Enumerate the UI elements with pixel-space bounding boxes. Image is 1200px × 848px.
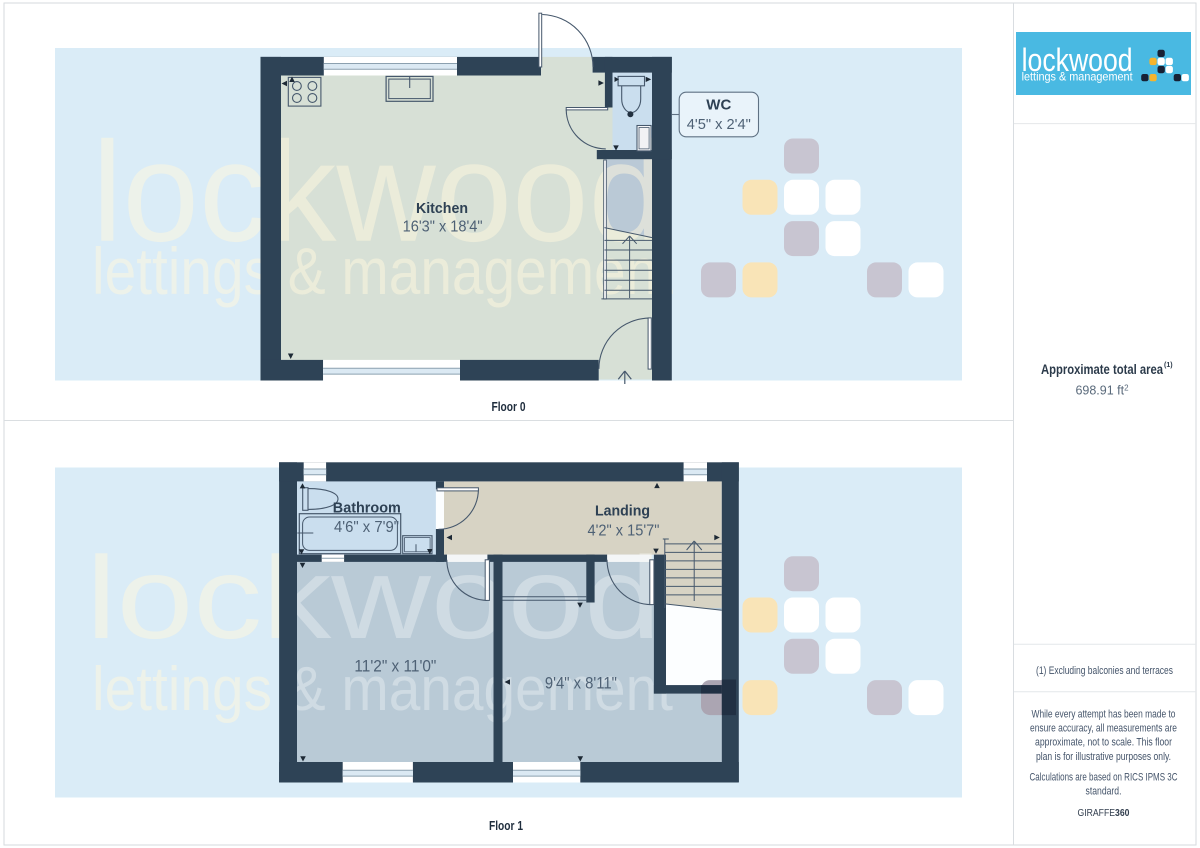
svg-text:While every attempt has been m: While every attempt has been made to <box>1032 709 1176 721</box>
svg-text:GIRAFFE360: GIRAFFE360 <box>1078 807 1130 819</box>
svg-text:4'6" x 7'9": 4'6" x 7'9" <box>334 519 399 536</box>
svg-text:698.91 ft2: 698.91 ft2 <box>1075 384 1129 398</box>
svg-text:plan is for illustrative purpo: plan is for illustrative purposes only. <box>1036 751 1171 763</box>
svg-text:Bathroom: Bathroom <box>333 500 401 517</box>
svg-text:Approximate total area: Approximate total area <box>1041 362 1163 377</box>
svg-text:(1): (1) <box>1164 362 1173 369</box>
svg-text:standard.: standard. <box>1086 786 1122 798</box>
svg-text:lettings & management: lettings & management <box>1022 70 1134 84</box>
svg-text:(1) Excluding balconies and te: (1) Excluding balconies and terraces <box>1036 665 1173 677</box>
svg-text:4'5" x 2'4": 4'5" x 2'4" <box>687 116 751 133</box>
svg-text:approximate, not to scale. Thi: approximate, not to scale. This floor <box>1035 737 1172 749</box>
svg-text:16'3" x 18'4": 16'3" x 18'4" <box>403 219 483 236</box>
svg-text:Landing: Landing <box>595 503 650 520</box>
svg-text:Kitchen: Kitchen <box>416 200 468 217</box>
svg-text:lettings & management: lettings & management <box>92 234 673 308</box>
svg-text:11'2" x 11'0": 11'2" x 11'0" <box>354 658 436 676</box>
svg-text:Calculations are based on RICS: Calculations are based on RICS IPMS 3C <box>1030 772 1178 784</box>
svg-text:Floor 1: Floor 1 <box>489 818 523 833</box>
svg-text:9'4" x 8'11": 9'4" x 8'11" <box>545 675 617 693</box>
svg-text:WC: WC <box>706 97 731 114</box>
svg-text:ensure accuracy, all measureme: ensure accuracy, all measurements are <box>1030 723 1177 735</box>
svg-text:Floor 0: Floor 0 <box>492 399 526 414</box>
svg-text:4'2" x 15'7": 4'2" x 15'7" <box>588 523 660 540</box>
